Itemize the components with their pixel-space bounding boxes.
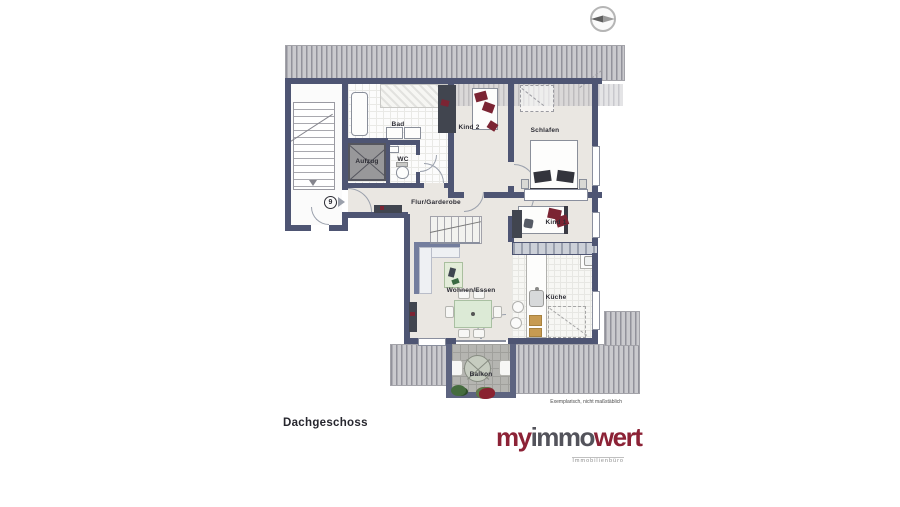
- wc-sink: [389, 146, 399, 153]
- roof-hatch-bottom-right: [512, 344, 640, 394]
- desk-kind1: [512, 210, 522, 238]
- nightstand: [521, 179, 529, 189]
- stair-direction-arrow: [309, 180, 317, 186]
- kitchen-sink: [529, 290, 544, 307]
- window: [418, 338, 446, 346]
- room-label-kind1: Kind 1: [545, 219, 566, 226]
- roof-window-dashed: [520, 85, 554, 112]
- builtin-wardrobe: [512, 242, 598, 255]
- room-label-aufzug: Aufzug: [355, 158, 378, 165]
- wall-segment: [342, 78, 602, 84]
- wall-segment: [285, 78, 348, 84]
- tv-sideboard: [409, 302, 417, 332]
- wall-segment: [416, 145, 420, 155]
- plant-red: [476, 387, 495, 399]
- sofa-seat: [419, 247, 432, 294]
- logo-part-my: my: [496, 422, 531, 452]
- laundry-column: [438, 85, 456, 133]
- compass-icon: [588, 4, 618, 34]
- toilet-bowl: [396, 166, 409, 179]
- logo-part-immo: immo: [531, 422, 594, 452]
- floor-title: Dachgeschoss: [283, 417, 368, 429]
- pillow: [533, 170, 551, 183]
- bar-stool: [510, 317, 522, 329]
- agency-logo: myimmowert Immobilienbüro: [496, 424, 624, 466]
- dining-chair: [493, 306, 502, 318]
- wall-segment: [508, 84, 514, 162]
- faucet: [535, 287, 539, 291]
- desk-chair: [523, 218, 533, 228]
- wall-segment: [386, 140, 420, 145]
- floorplan-page: Bad Kind 2 Schlafen WC Aufzug Flur/Garde…: [0, 0, 900, 507]
- bar-stool: [512, 301, 524, 313]
- roof-hatch-top: [285, 45, 625, 81]
- dining-chair: [473, 329, 485, 338]
- roof-hatch-right-edge: [604, 311, 640, 346]
- wall-segment: [592, 253, 598, 291]
- wall-segment: [285, 78, 291, 231]
- stair-railing: [430, 242, 480, 244]
- room-label-balkon: Balkon: [470, 371, 493, 378]
- wall-segment: [344, 138, 388, 143]
- plant-green: [451, 385, 466, 396]
- room-label-schlafen: Schlafen: [531, 127, 560, 134]
- sink: [386, 127, 403, 139]
- agency-logo-tagline: Immobilienbüro: [572, 457, 624, 465]
- entrance-number-badge: 9: [324, 196, 337, 209]
- wall-segment: [416, 172, 420, 183]
- entrance-arrow-icon: [338, 197, 345, 207]
- pillow: [556, 170, 574, 183]
- dormer-window: [524, 189, 588, 201]
- balcony-wall: [510, 344, 516, 398]
- wall-segment: [342, 78, 348, 190]
- room-label-wohnen: Wohnen/Essen: [447, 287, 496, 294]
- disclaimer-note: Exemplarisch, nicht maßstäblich: [534, 399, 622, 405]
- hall-sideboard: [374, 205, 402, 213]
- french-door-frame: [456, 340, 506, 342]
- wall-segment: [386, 145, 390, 183]
- roof-hatch-bottom-left: [390, 344, 450, 386]
- sideboard-item: [380, 206, 384, 210]
- wall-segment: [484, 192, 510, 198]
- wall-segment: [342, 183, 424, 188]
- room-label-wc: WC: [397, 156, 408, 163]
- logo-part-wert: wert: [594, 422, 641, 452]
- window: [592, 212, 600, 238]
- wall-segment: [285, 225, 311, 231]
- sink: [404, 127, 421, 139]
- bed-schlafen: [530, 140, 578, 192]
- dining-chair: [445, 306, 454, 318]
- agency-logo-wordmark: myimmowert: [496, 424, 624, 450]
- window: [592, 291, 600, 330]
- window: [592, 146, 600, 186]
- oven: [529, 328, 542, 337]
- sideboard-item: [410, 312, 415, 316]
- wall-segment: [508, 338, 598, 344]
- room-label-flur: Flur/Garderobe: [411, 199, 461, 206]
- wall-segment: [508, 192, 524, 198]
- room-label-kueche: Küche: [546, 294, 567, 301]
- wall-segment: [444, 183, 454, 188]
- wall-segment: [592, 198, 598, 212]
- nightstand: [579, 179, 587, 189]
- dining-chair: [458, 329, 470, 338]
- wall-segment: [448, 192, 464, 198]
- bathtub: [351, 92, 368, 136]
- room-label-bad: Bad: [392, 121, 405, 128]
- room-label-kind2: Kind 2: [458, 124, 479, 131]
- wall-segment: [592, 84, 598, 146]
- table-center-dot: [471, 312, 475, 316]
- oven: [529, 315, 542, 326]
